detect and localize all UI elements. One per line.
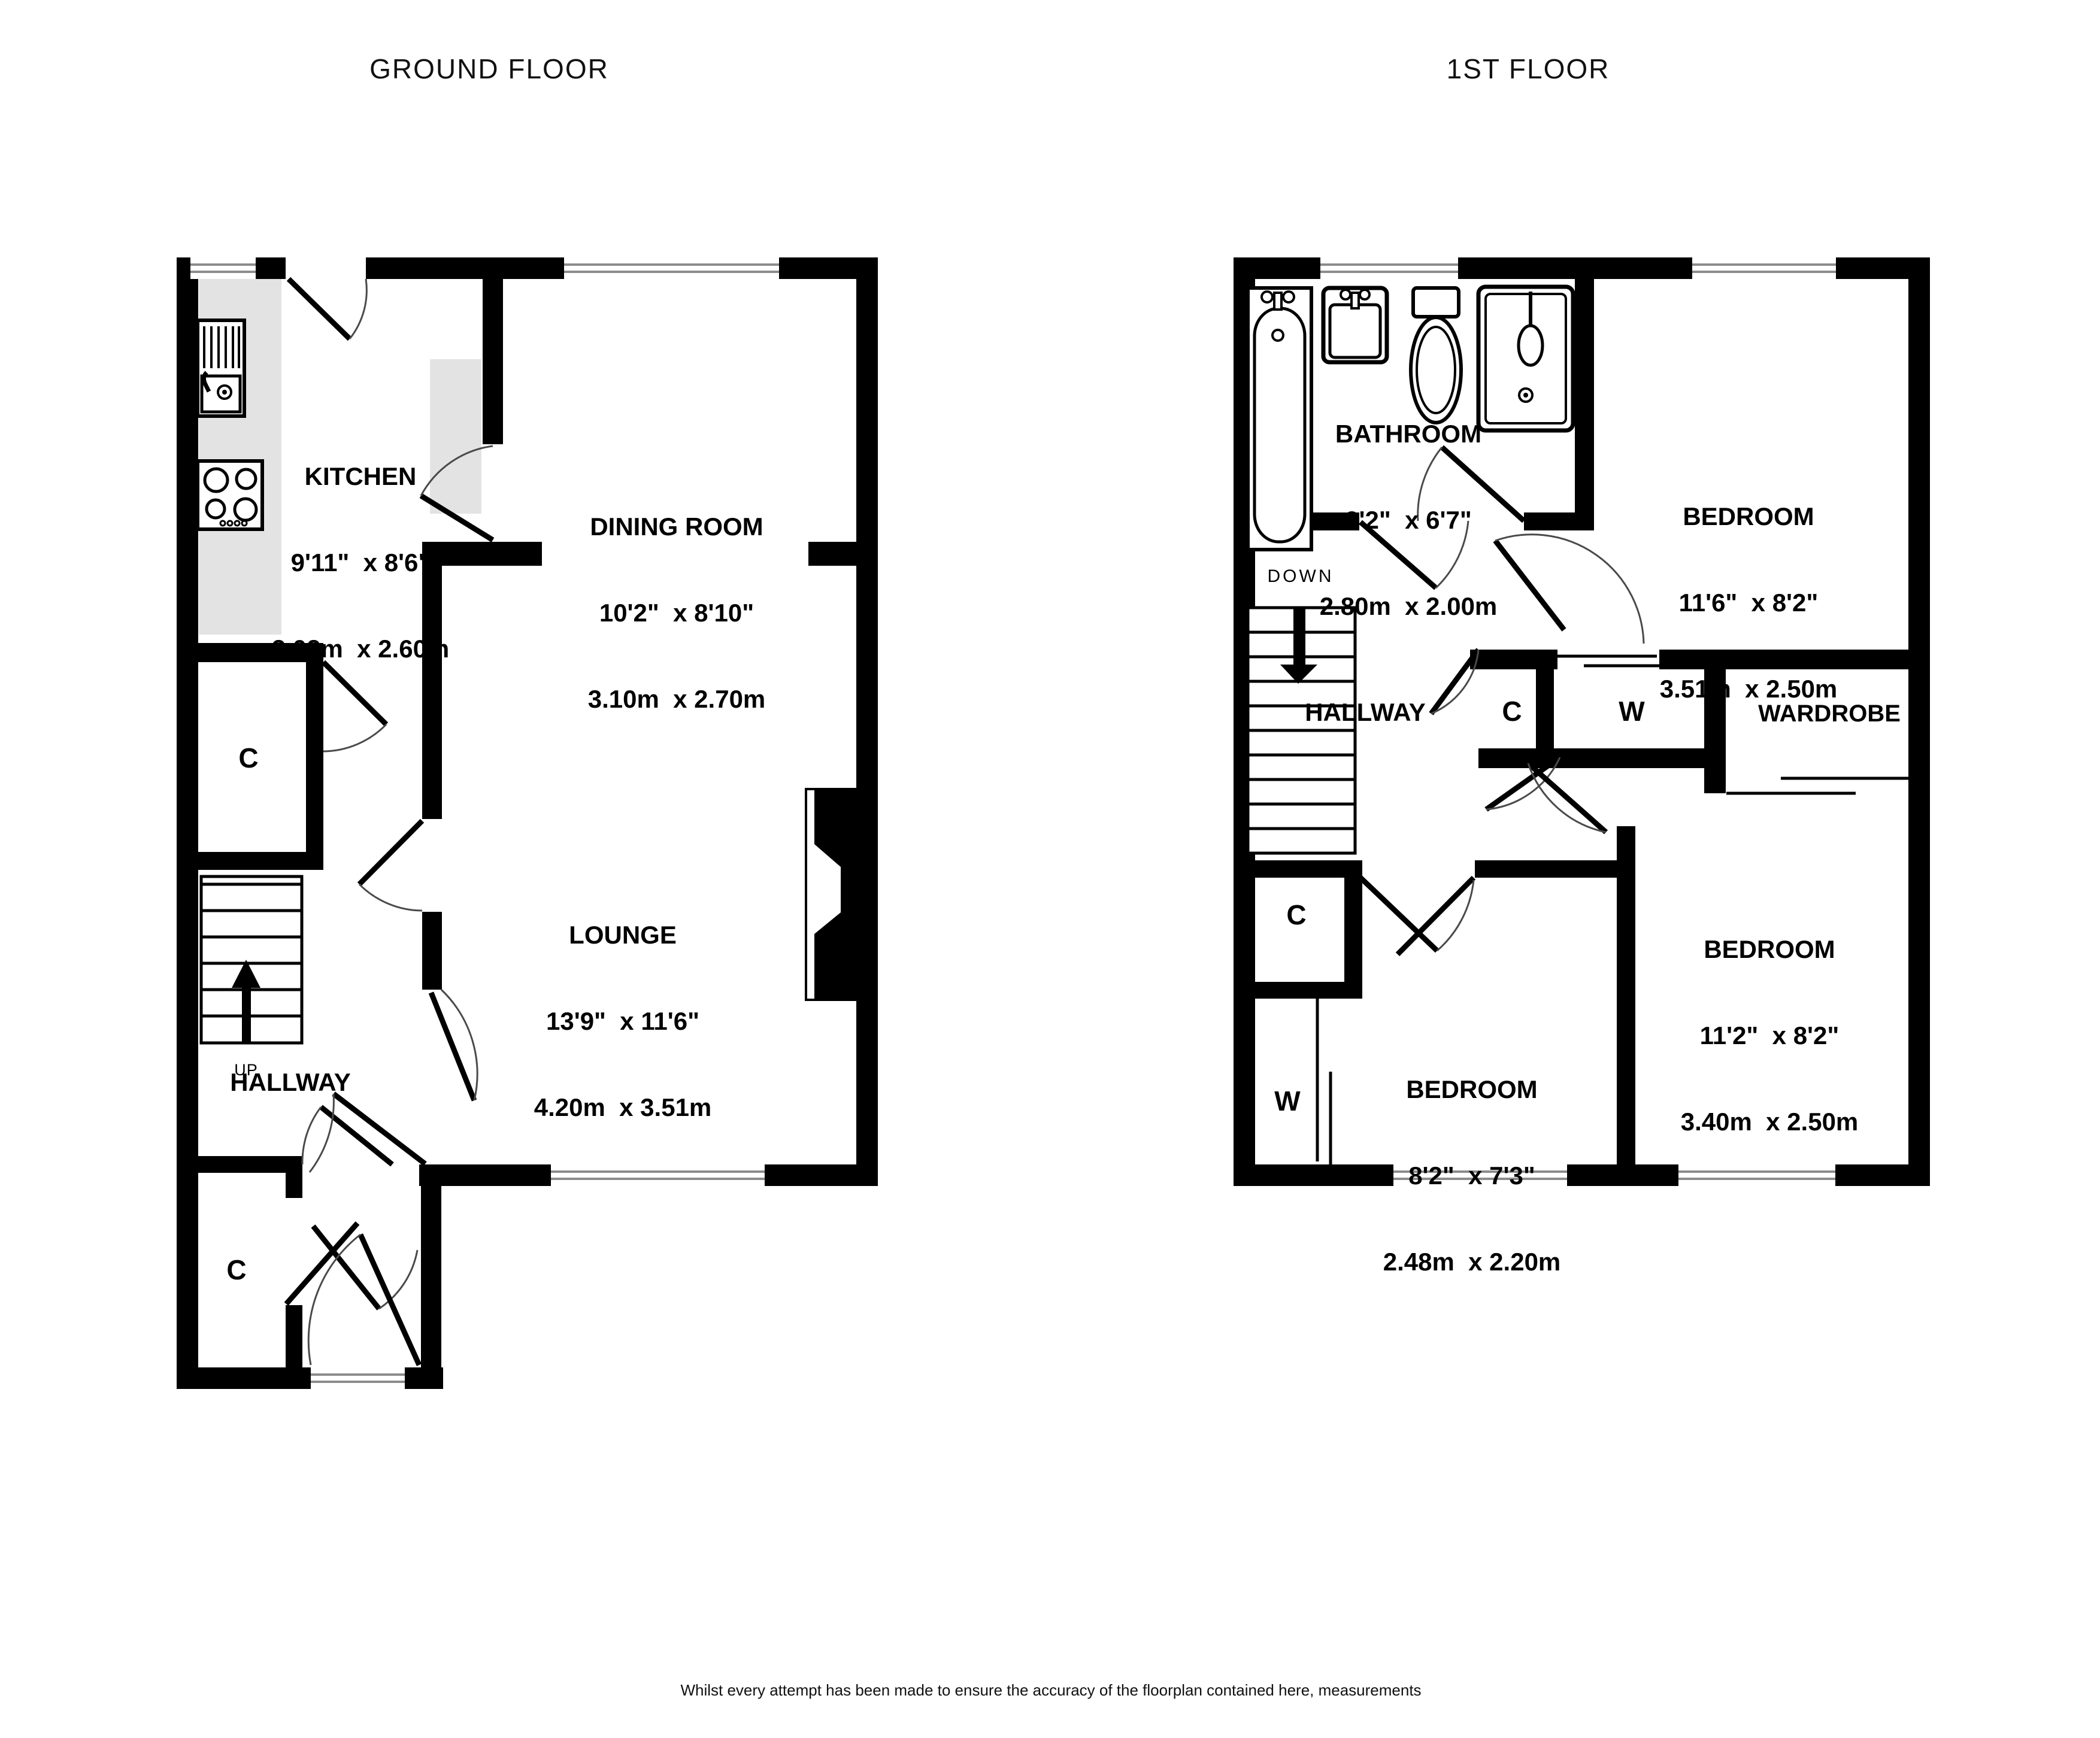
cupboard-label: C [238, 744, 258, 772]
up-arrow-icon [242, 988, 251, 1043]
stairs-down-label: DOWN [1268, 566, 1334, 587]
door-leaf [1495, 541, 1564, 630]
door-swing [379, 1250, 417, 1309]
window [1320, 257, 1458, 279]
room-size-imperial: 10'2" x 8'10" [588, 599, 766, 627]
door-leaf [321, 1107, 392, 1164]
wall [421, 1164, 441, 1389]
wall [1234, 982, 1362, 999]
front-door-window [311, 1367, 405, 1389]
room-size-metric: 4.20m x 3.51m [534, 1093, 712, 1122]
wall [808, 542, 878, 566]
wall [177, 257, 198, 1389]
bath-tap [1274, 293, 1281, 310]
stairs-up-label: UP [234, 1061, 258, 1079]
basin-tap [1351, 293, 1359, 308]
door-swing [441, 990, 477, 1100]
door-swing [359, 884, 422, 911]
cupboard-label: C [1286, 901, 1306, 929]
room-size-imperial: 11'6" x 8'2" [1660, 589, 1838, 617]
wall [1524, 512, 1584, 530]
door-leaf [359, 821, 422, 884]
wall [1536, 650, 1554, 768]
room-name: BATHROOM [1320, 420, 1498, 448]
wall [286, 1173, 302, 1198]
room-size-imperial: 9'2" x 6'7" [1320, 506, 1498, 535]
sink-plughole [222, 390, 227, 395]
door-swing [302, 1107, 321, 1164]
wall [1575, 279, 1594, 530]
room-size-metric: 3.02m x 2.60m [272, 635, 450, 663]
room-size-imperial: 9'11" x 8'6" [272, 548, 450, 577]
bedroom-label: BEDROOM 11'2" x 8'2" 3.40m x 2.50m [1681, 878, 1859, 1194]
door-swing [1437, 880, 1474, 951]
basin [1330, 305, 1380, 357]
ground-floor-title: GROUND FLOOR [369, 53, 609, 85]
bedroom-label: BEDROOM 8'2" x 7'3" 2.48m x 2.20m [1383, 1018, 1561, 1334]
window [564, 257, 779, 279]
cupboard-label: C [1502, 697, 1522, 725]
wall [1234, 860, 1359, 878]
wall [1908, 257, 1930, 1186]
room-size-metric: 2.80m x 2.00m [1320, 592, 1498, 621]
wall [286, 1305, 302, 1367]
dining-room-label: DINING ROOM 10'2" x 8'10" 3.10m x 2.70m [588, 455, 766, 771]
wall [1344, 860, 1362, 998]
door-swing [1495, 535, 1644, 644]
bathroom-label: BATHROOM 9'2" x 6'7" 2.80m x 2.00m [1320, 362, 1498, 678]
wall [1475, 860, 1635, 878]
door-leaf [1528, 763, 1606, 832]
fireplace-icon [806, 789, 859, 1000]
stairs-up-icon [201, 876, 302, 1043]
room-size-metric: 3.10m x 2.70m [588, 685, 766, 714]
door-leaf [289, 279, 350, 339]
down-arrow-icon [1293, 608, 1305, 666]
window [1692, 257, 1836, 279]
bath-tub [1254, 308, 1305, 542]
hallway-label: HALLWAY [1305, 698, 1425, 727]
hob-icon [198, 461, 262, 529]
lounge-label: LOUNGE 13'9" x 11'6" 4.20m x 3.51m [534, 863, 712, 1179]
bathtub-icon [1248, 288, 1311, 550]
shower-head [1519, 326, 1543, 365]
room-size-metric: 3.40m x 2.50m [1681, 1108, 1859, 1136]
room-name: BEDROOM [1681, 935, 1859, 964]
disclaimer: Whilst every attempt has been made to en… [676, 1644, 1425, 1738]
floorplan-canvas: GROUND FLOOR 1ST FLOOR [0, 0, 2100, 1738]
wall [483, 257, 503, 444]
wall [422, 912, 442, 990]
room-name: LOUNGE [534, 921, 712, 950]
door-swing [310, 1094, 334, 1172]
wall [177, 852, 323, 870]
bath-plughole [1272, 330, 1283, 341]
first-floor-title: 1ST FLOOR [1447, 53, 1610, 85]
room-name: KITCHEN [272, 462, 450, 491]
door-swing [350, 279, 366, 339]
washbasin-icon [1323, 288, 1387, 362]
disclaimer-line: Whilst every attempt has been made to en… [676, 1681, 1425, 1700]
wardrobe-label: WARDROBE [1758, 699, 1901, 728]
wardrobe-small-label: W [1274, 1087, 1300, 1115]
door-opening [286, 257, 366, 279]
door-leaf [431, 993, 474, 1100]
room-size-metric: 2.48m x 2.20m [1383, 1248, 1561, 1276]
room-name: BEDROOM [1660, 502, 1838, 531]
door-swing [323, 724, 386, 751]
wardrobe-small-label: W [1619, 697, 1644, 725]
wall [856, 257, 878, 1186]
door-leaf [1398, 878, 1474, 954]
room-size-imperial: 8'2" x 7'3" [1383, 1161, 1561, 1190]
toilet-cistern [1413, 288, 1459, 317]
sink-icon [198, 320, 244, 416]
room-name: BEDROOM [1383, 1075, 1561, 1104]
window [190, 257, 256, 279]
room-name: DINING ROOM [588, 512, 766, 541]
stairs-outline [201, 876, 302, 1043]
wall [177, 1156, 302, 1173]
kitchen-label: KITCHEN 9'11" x 8'6" 3.02m x 2.60m [272, 405, 450, 721]
shower-drain [1523, 393, 1528, 398]
door-leaf [1360, 878, 1437, 951]
cupboard-label: C [226, 1256, 246, 1284]
room-size-imperial: 11'2" x 8'2" [1681, 1021, 1859, 1050]
room-size-imperial: 13'9" x 11'6" [534, 1007, 712, 1036]
